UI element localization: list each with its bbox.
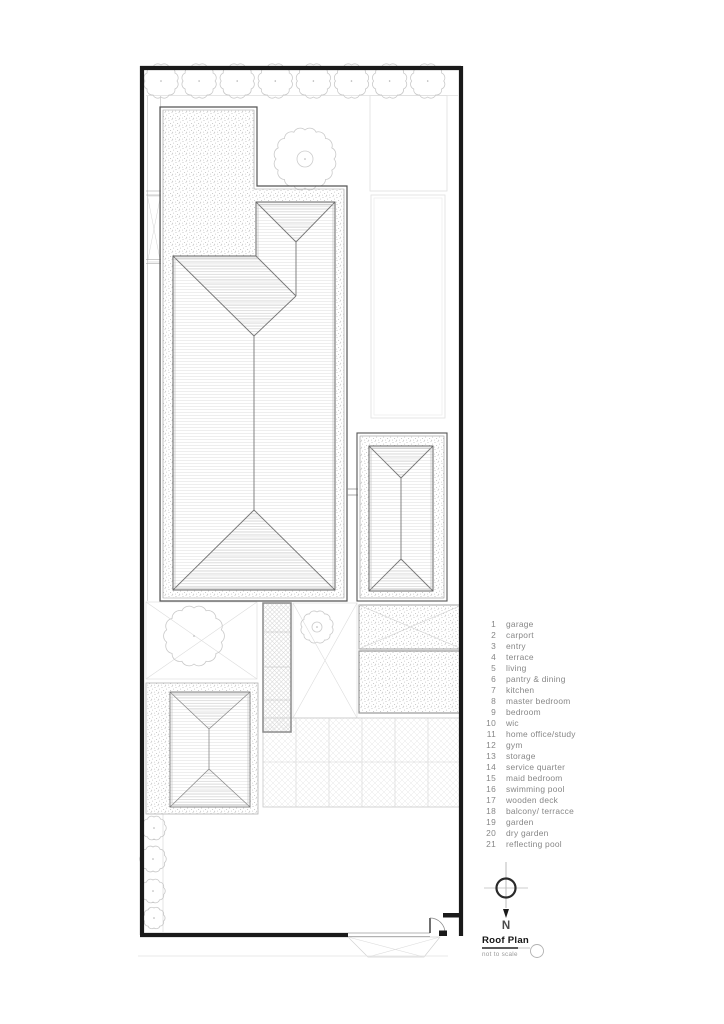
pool-outline-upper xyxy=(370,96,447,192)
scale-note: not to scale xyxy=(482,951,518,958)
legend-item: 9bedroom xyxy=(477,706,617,717)
legend-item: 5living xyxy=(477,662,617,673)
legend-item: 17wooden deck xyxy=(477,795,617,806)
garage-roof xyxy=(146,683,258,814)
legend-item: 15maid bedroom xyxy=(477,773,617,784)
legend-item: 12gym xyxy=(477,740,617,751)
legend-item: 14service quarter xyxy=(477,762,617,773)
roof-plan-drawing xyxy=(0,0,724,1024)
walkway-strip xyxy=(263,603,291,732)
legend-item: 18balcony/ terracce xyxy=(477,806,617,817)
legend-item: 3entry xyxy=(477,640,617,651)
gravel-pad xyxy=(359,651,462,713)
legend-item: 6pantry & dining xyxy=(477,673,617,684)
entry-gate xyxy=(348,913,461,937)
title-marker-circle xyxy=(531,945,544,958)
room-legend: 1garage2carport3entry4terrace5living6pan… xyxy=(477,618,617,850)
side-planter xyxy=(146,191,161,264)
main-roof xyxy=(160,107,358,601)
stippled-pads xyxy=(359,605,462,713)
dry-garden-pad-crossed xyxy=(359,605,462,649)
driveway-ramp xyxy=(348,937,440,957)
legend-item: 4terrace xyxy=(477,651,617,662)
pergola-grid xyxy=(263,718,461,807)
legend-item: 21reflecting pool xyxy=(477,839,617,850)
north-arrow-icon xyxy=(484,862,528,918)
legend-item: 8master bedroom xyxy=(477,695,617,706)
north-label: N xyxy=(494,920,518,932)
roof-connector xyxy=(347,489,358,495)
legend-item: 1garage xyxy=(477,618,617,629)
legend-item: 10wic xyxy=(477,717,617,728)
service-quarter-roof xyxy=(357,433,447,601)
gate-pier xyxy=(443,913,461,918)
legend-item: 2carport xyxy=(477,629,617,640)
legend-item: 20dry garden xyxy=(477,828,617,839)
page-title: Roof Plan xyxy=(482,935,602,946)
legend-item: 7kitchen xyxy=(477,684,617,695)
garden-trellis-left xyxy=(146,602,257,679)
roof-plan-page: 1garage2carport3entry4terrace5living6pan… xyxy=(0,0,724,1024)
pool-outline-lower xyxy=(371,195,445,418)
legend-item: 16swimming pool xyxy=(477,784,617,795)
side-passage xyxy=(148,96,161,601)
title-block: Roof Plan xyxy=(482,935,602,946)
legend-item: 19garden xyxy=(477,817,617,828)
legend-item: 13storage xyxy=(477,751,617,762)
legend-item: 11home office/study xyxy=(477,728,617,739)
